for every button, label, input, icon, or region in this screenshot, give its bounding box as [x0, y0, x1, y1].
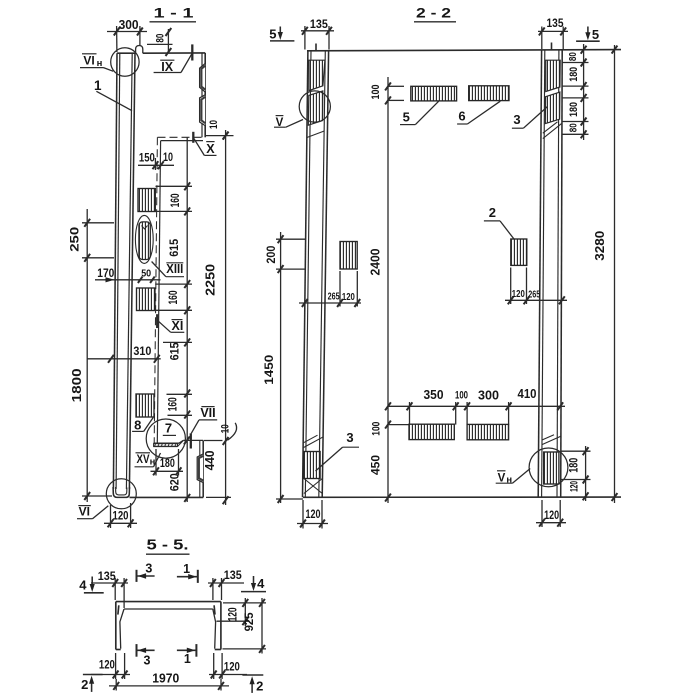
svg-text:VI: VI — [79, 505, 90, 519]
svg-text:180: 180 — [568, 102, 580, 117]
svg-text:3: 3 — [513, 112, 520, 127]
svg-text:4: 4 — [79, 578, 87, 593]
svg-text:10: 10 — [208, 120, 220, 129]
svg-text:2: 2 — [256, 679, 263, 694]
svg-text:1: 1 — [183, 562, 190, 576]
svg-text:10: 10 — [163, 152, 173, 164]
svg-text:н: н — [150, 457, 156, 468]
svg-text:3280: 3280 — [593, 231, 607, 261]
svg-text:300: 300 — [478, 388, 499, 402]
svg-text:3: 3 — [145, 562, 152, 576]
svg-text:300: 300 — [119, 18, 139, 32]
svg-text:440: 440 — [203, 450, 217, 470]
svg-text:2: 2 — [489, 205, 496, 220]
svg-text:120: 120 — [99, 658, 115, 672]
svg-text:310: 310 — [133, 344, 151, 358]
svg-text:615: 615 — [167, 239, 181, 257]
svg-text:5: 5 — [592, 27, 599, 42]
svg-text:265: 265 — [328, 290, 340, 302]
svg-text:XI: XI — [171, 319, 183, 333]
svg-text:265: 265 — [528, 289, 540, 301]
svg-text:120: 120 — [113, 509, 129, 523]
svg-text:VII: VII — [200, 406, 215, 420]
svg-text:120: 120 — [224, 660, 240, 674]
svg-text:170: 170 — [97, 266, 114, 280]
svg-text:2 - 2: 2 - 2 — [416, 5, 451, 21]
svg-text:1800: 1800 — [70, 368, 84, 402]
svg-text:620: 620 — [167, 473, 181, 491]
svg-text:4: 4 — [257, 576, 265, 591]
svg-text:1 - 1: 1 - 1 — [154, 5, 194, 21]
svg-text:160: 160 — [168, 291, 180, 305]
svg-text:1450: 1450 — [262, 354, 276, 384]
svg-text:3: 3 — [346, 430, 353, 445]
svg-text:120: 120 — [228, 607, 240, 621]
svg-text:160: 160 — [170, 193, 182, 207]
svg-text:135: 135 — [98, 569, 116, 583]
svg-text:IX: IX — [161, 60, 173, 74]
svg-text:180: 180 — [569, 458, 581, 473]
svg-text:100: 100 — [370, 85, 382, 100]
svg-text:2400: 2400 — [369, 248, 383, 275]
svg-text:5: 5 — [403, 110, 410, 125]
svg-text:120: 120 — [306, 507, 321, 521]
svg-text:VI: VI — [83, 53, 94, 67]
svg-text:7: 7 — [165, 421, 172, 436]
svg-text:1: 1 — [94, 78, 102, 93]
svg-text:100: 100 — [455, 389, 468, 401]
svg-text:80: 80 — [567, 52, 579, 61]
svg-text:5: 5 — [269, 27, 276, 42]
svg-text:XIII: XIII — [166, 262, 183, 276]
svg-text:925: 925 — [242, 612, 256, 631]
svg-text:3: 3 — [144, 654, 151, 668]
svg-text:410: 410 — [518, 387, 537, 401]
svg-text:180: 180 — [568, 67, 580, 82]
svg-text:120: 120 — [342, 291, 355, 303]
svg-text:150: 150 — [139, 151, 155, 165]
svg-text:100: 100 — [370, 422, 382, 436]
svg-text:X: X — [206, 142, 215, 156]
svg-text:6: 6 — [458, 109, 465, 124]
svg-text:120: 120 — [512, 288, 525, 300]
svg-text:н: н — [506, 475, 512, 486]
svg-text:450: 450 — [368, 455, 382, 475]
svg-text:135: 135 — [310, 17, 328, 31]
svg-text:80: 80 — [567, 123, 579, 132]
svg-text:8: 8 — [134, 417, 141, 432]
svg-text:250: 250 — [68, 226, 82, 251]
svg-text:1970: 1970 — [152, 671, 179, 686]
svg-text:2250: 2250 — [204, 264, 218, 296]
svg-text:615: 615 — [168, 342, 182, 360]
svg-text:5 - 5.: 5 - 5. — [147, 538, 189, 554]
svg-text:1: 1 — [184, 652, 191, 666]
svg-text:2: 2 — [81, 677, 88, 692]
svg-text:135: 135 — [224, 568, 242, 582]
svg-text:160: 160 — [168, 397, 180, 411]
svg-text:180: 180 — [160, 456, 175, 470]
svg-text:135: 135 — [547, 16, 564, 30]
svg-text:10: 10 — [220, 424, 232, 433]
svg-text:120: 120 — [544, 508, 559, 522]
svg-text:XV: XV — [137, 452, 150, 466]
svg-text:80: 80 — [154, 34, 166, 43]
svg-text:200: 200 — [264, 245, 278, 263]
svg-text:120: 120 — [569, 481, 581, 492]
svg-text:350: 350 — [424, 388, 444, 402]
